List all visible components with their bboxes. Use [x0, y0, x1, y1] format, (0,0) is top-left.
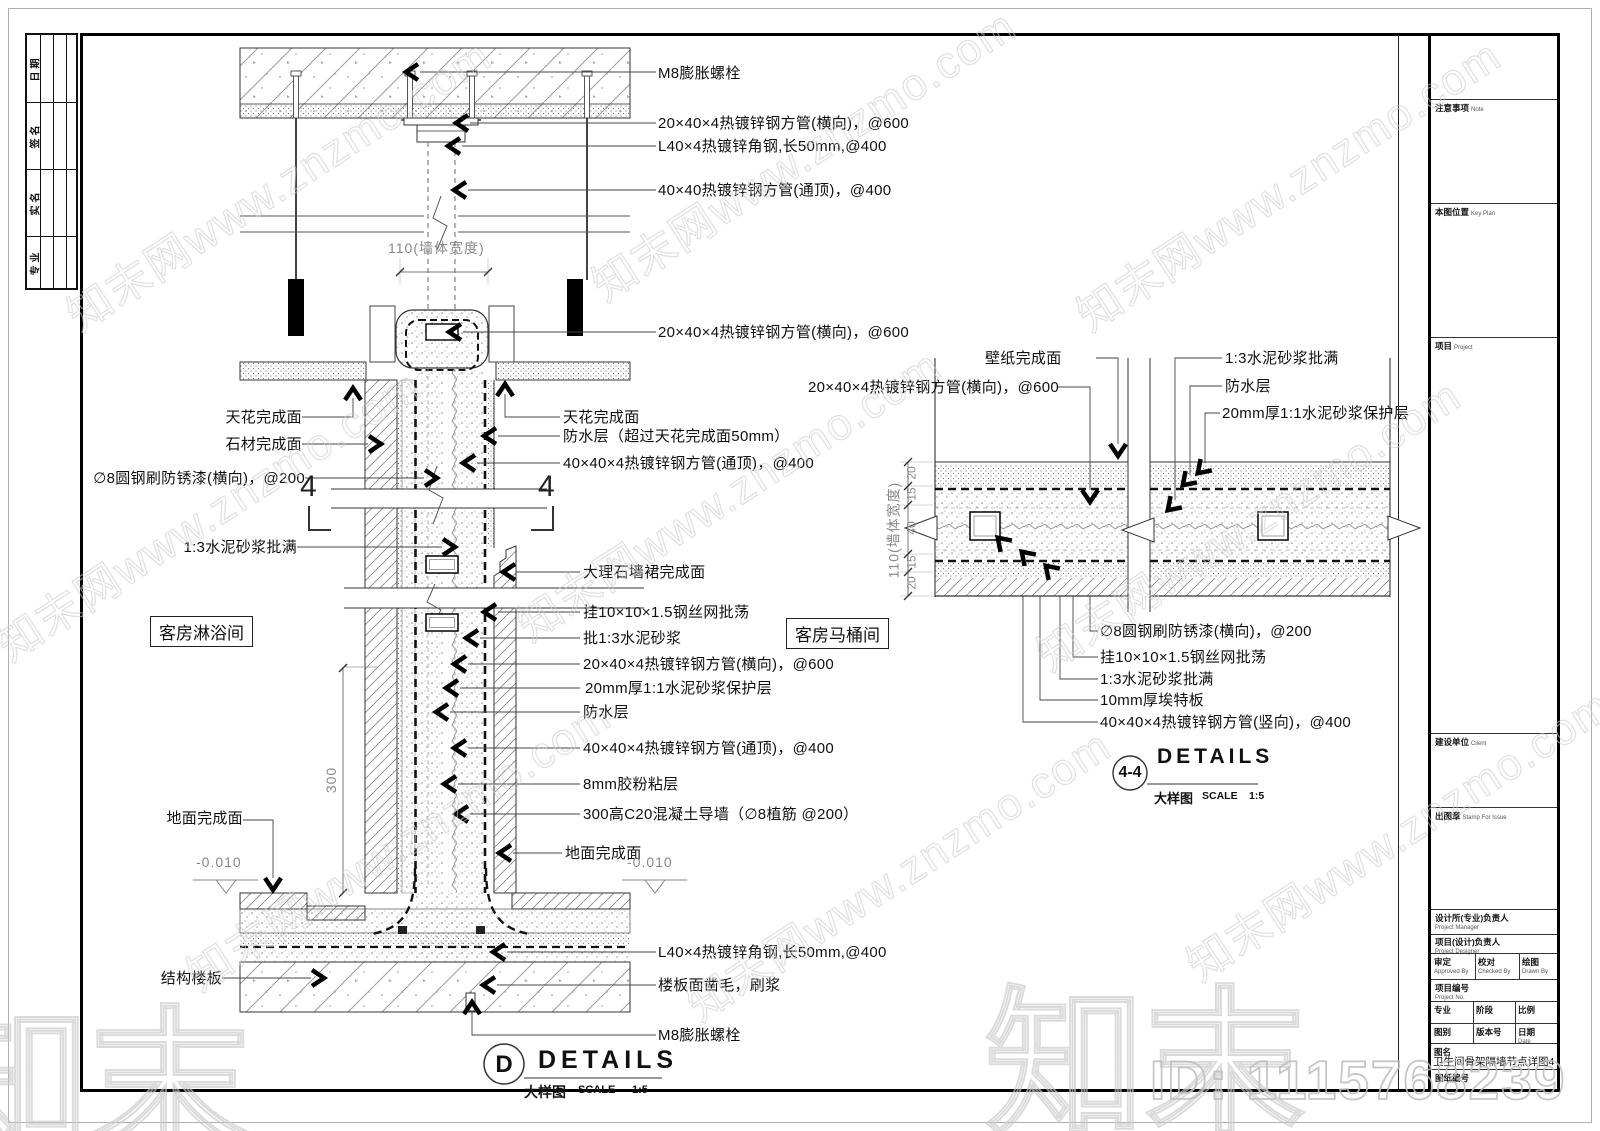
level-mark: -0.010 [196, 854, 242, 870]
dim-tick: 15 [905, 487, 919, 500]
callout-text: 20×40×4热镀锌钢方管(横向)，@600 [658, 323, 909, 342]
callout-text: 1:3水泥砂浆批满 [183, 538, 297, 557]
room-label-toilet: 客房马桶间 [786, 618, 889, 649]
callout-text: ∅8圆钢刷防锈漆(横向)，@200 [1100, 622, 1312, 641]
dim-tick: 20 [905, 576, 919, 589]
callout-text: 1:3水泥砂浆批满 [1225, 349, 1339, 368]
callout-text: 40×40×4热镀锌钢方管(通顶)，@400 [583, 739, 834, 758]
scale-label: SCALE [578, 1084, 615, 1096]
dim-wall-width: 110(墙体宽度) [883, 482, 903, 579]
callout-text: 8mm胶粉粘层 [583, 775, 678, 794]
callout-text: 地面完成面 [166, 809, 243, 828]
callout-text: 防水层（超过天花完成面50mm） [563, 427, 789, 446]
section-mark-4: 4 [300, 470, 317, 504]
detail-subtitle: 大样图 [524, 1082, 566, 1102]
callout-text: 壁纸完成面 [985, 349, 1062, 368]
detail-title: DETAILS [1157, 745, 1273, 769]
room-label-shower: 客房淋浴间 [150, 616, 253, 647]
detail-ref: 4-4 [1112, 764, 1148, 782]
scale-value: 1:5 [632, 1084, 648, 1096]
callout-text: 40×40×4热镀锌钢方管(竖向)，@400 [1100, 713, 1351, 732]
drawing-sheet: 日期 签名 实名 专业 M8膨胀螺栓 20×40×4热镀锌钢方管(横向)，@60… [0, 0, 1600, 1131]
callout-text: 防水层 [583, 703, 629, 722]
callout-text: 大理石墙裙完成面 [583, 563, 705, 582]
callout-text: M8膨胀螺栓 [658, 64, 741, 83]
dim-tick: 15 [905, 555, 919, 568]
callout-text: 防水层 [1225, 377, 1271, 396]
callout-text: 1:3水泥砂浆批满 [1100, 670, 1214, 689]
callout-text: 挂10×10×1.5钢丝网批荡 [1100, 648, 1266, 667]
callout-text: 20mm厚1:1水泥砂浆保护层 [585, 679, 772, 698]
dim-tick: 20 [905, 466, 919, 479]
callout-text: 挂10×10×1.5钢丝网批荡 [583, 603, 749, 622]
dim-tick: 40 [905, 521, 919, 534]
callout-text: 结构楼板 [161, 969, 222, 988]
callout-text: L40×4热镀锌角钢,长50mm,@400 [658, 137, 887, 156]
level-mark: -0.010 [627, 854, 673, 870]
scale-value: 1:5 [1249, 790, 1264, 802]
callout-text: 20×40×4热镀锌钢方管(横向)，@600 [583, 655, 834, 674]
callout-text: 石材完成面 [225, 435, 302, 454]
callout-text: 楼板面凿毛，刷浆 [658, 976, 780, 995]
callout-text: 20mm厚1:1水泥砂浆保护层 [1222, 404, 1409, 423]
callout-text: 20×40×4热镀锌钢方管(横向)，@600 [808, 378, 1059, 397]
detail-title: DETAILS [538, 1046, 678, 1075]
callout-text: 批1:3水泥砂浆 [583, 629, 681, 648]
callout-text: 40×40热镀锌钢方管(通顶)，@400 [658, 181, 891, 200]
callout-text: 20×40×4热镀锌钢方管(横向)，@600 [658, 114, 909, 133]
detail-ref: D [492, 1051, 516, 1079]
section-mark-4: 4 [538, 470, 555, 504]
callout-text: 天花完成面 [563, 408, 640, 427]
scale-label: SCALE [1202, 790, 1238, 802]
callout-text: 10mm厚埃特板 [1100, 691, 1204, 710]
dim-300: 300 [323, 767, 339, 793]
annotation-layer: M8膨胀螺栓 20×40×4热镀锌钢方管(横向)，@600 L40×4热镀锌角钢… [0, 0, 1600, 1131]
callout-text: L40×4热镀锌角钢,长50mm,@400 [658, 943, 887, 962]
callout-text: ∅8圆钢刷防锈漆(横向)，@200 [93, 469, 305, 488]
callout-text: 天花完成面 [225, 408, 302, 427]
dim-wall-width: 110(墙体宽度) [388, 238, 485, 258]
callout-text: M8膨胀螺栓 [658, 1026, 741, 1045]
callout-text: 300高C20混凝土导墙（∅8植筋 @200） [583, 805, 858, 824]
callout-text: 40×40×4热镀锌钢方管(通顶)，@400 [563, 454, 814, 473]
detail-subtitle: 大样图 [1154, 788, 1193, 807]
